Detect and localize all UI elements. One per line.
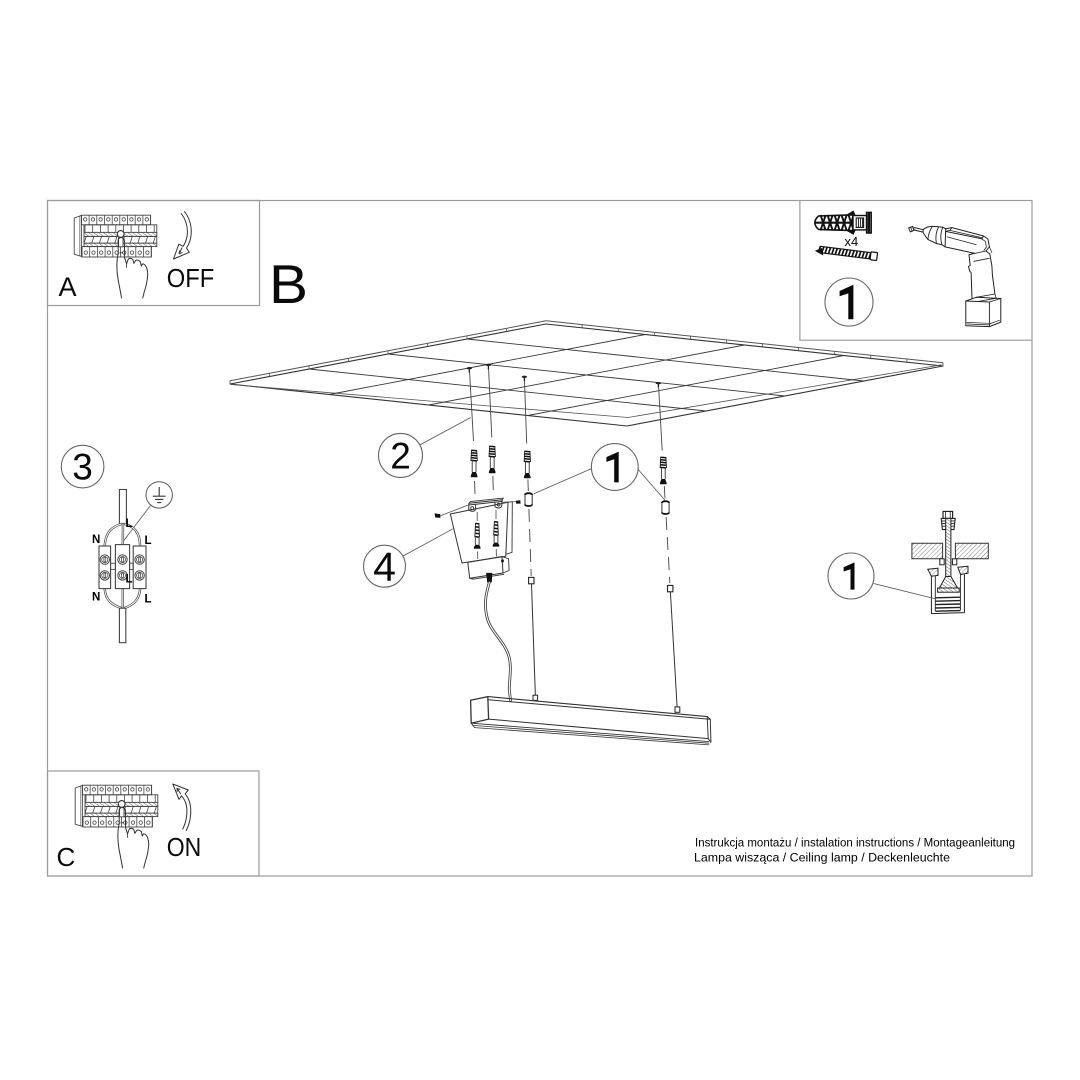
svg-text:2: 2 <box>390 436 411 477</box>
svg-text:C: C <box>57 842 76 872</box>
svg-text:4: 4 <box>373 544 396 590</box>
svg-text:L: L <box>126 518 133 530</box>
svg-text:ON: ON <box>167 832 202 862</box>
svg-text:Lampa wisząca / Ceiling lamp /: Lampa wisząca / Ceiling lamp / Deckenleu… <box>694 851 950 865</box>
svg-text:3: 3 <box>72 447 93 488</box>
svg-text:L: L <box>145 594 152 606</box>
svg-text:Instrukcja montażu / instalati: Instrukcja montażu / instalation instruc… <box>695 836 1015 850</box>
svg-text:x4: x4 <box>845 234 859 249</box>
svg-text:B: B <box>269 253 308 315</box>
svg-text:L: L <box>126 574 133 586</box>
svg-text:N: N <box>92 592 100 604</box>
svg-text:A: A <box>59 272 77 302</box>
svg-text:N: N <box>92 534 100 546</box>
svg-text:OFF: OFF <box>167 263 215 293</box>
svg-text:L: L <box>145 535 152 547</box>
